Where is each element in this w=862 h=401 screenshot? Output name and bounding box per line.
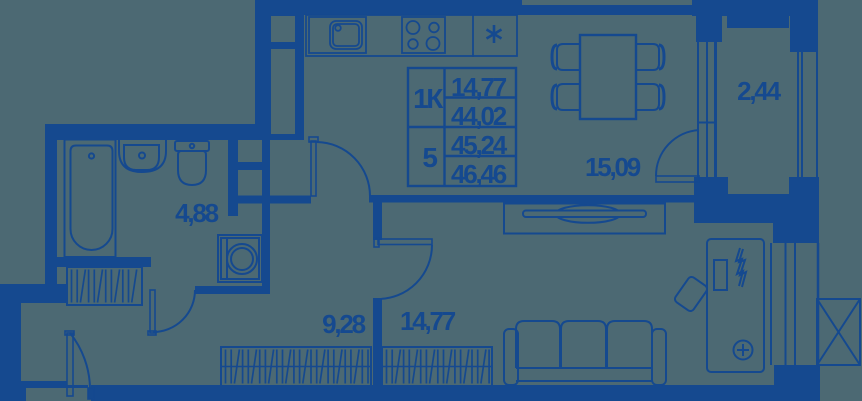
svg-text:2,44: 2,44 [737,76,782,106]
svg-text:15,09: 15,09 [585,152,641,182]
svg-text:46,46: 46,46 [451,159,507,189]
svg-text:1К: 1К [413,83,444,114]
svg-text:9,28: 9,28 [322,309,366,339]
svg-text:14,77: 14,77 [451,72,507,102]
svg-text:44,02: 44,02 [451,101,507,131]
svg-text:45,24: 45,24 [451,130,508,160]
svg-text:5: 5 [422,142,437,173]
svg-text:4,88: 4,88 [175,198,219,228]
svg-text:14,77: 14,77 [400,306,456,336]
